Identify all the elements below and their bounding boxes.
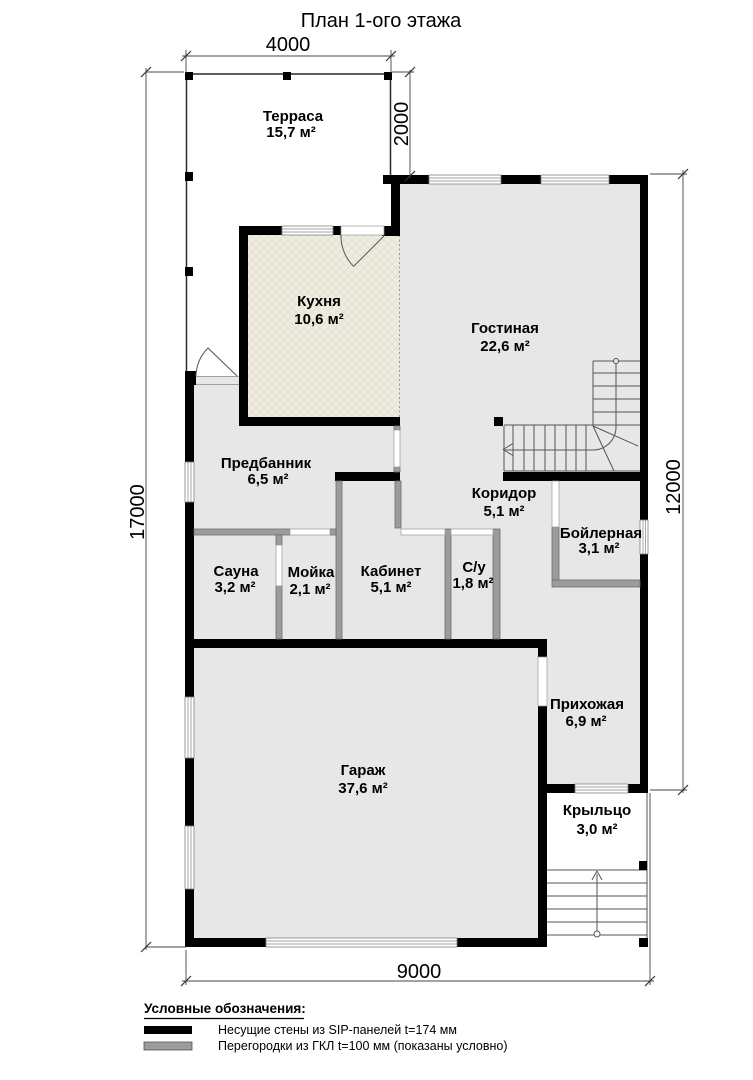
svg-text:3,1 м²: 3,1 м²	[578, 540, 619, 557]
svg-text:2000: 2000	[391, 102, 413, 147]
svg-text:План 1-ого этажа: План 1-ого этажа	[301, 10, 462, 32]
svg-text:3,0 м²: 3,0 м²	[576, 821, 617, 838]
svg-text:1,8 м²: 1,8 м²	[452, 575, 493, 592]
svg-text:17000: 17000	[127, 484, 149, 540]
svg-text:2,1 м²: 2,1 м²	[289, 581, 330, 598]
svg-text:Коридор: Коридор	[472, 485, 537, 502]
svg-text:Сауна: Сауна	[213, 563, 259, 580]
svg-text:Кабинет: Кабинет	[361, 563, 422, 580]
svg-text:Терраса: Терраса	[263, 108, 324, 125]
svg-text:Гостиная: Гостиная	[471, 320, 539, 337]
svg-text:5,1 м²: 5,1 м²	[483, 503, 524, 520]
svg-text:12000: 12000	[663, 459, 685, 515]
svg-text:Предбанник: Предбанник	[221, 455, 312, 472]
svg-text:22,6 м²: 22,6 м²	[480, 338, 529, 355]
svg-text:37,6 м²: 37,6 м²	[338, 780, 387, 797]
svg-text:10,6 м²: 10,6 м²	[294, 311, 343, 328]
svg-text:6,5 м²: 6,5 м²	[247, 471, 288, 488]
svg-text:5,1 м²: 5,1 м²	[370, 579, 411, 596]
svg-text:С/у: С/у	[462, 559, 486, 576]
svg-text:Прихожая: Прихожая	[550, 696, 624, 713]
svg-text:3,2 м²: 3,2 м²	[214, 579, 255, 596]
svg-text:Условные обозначения:: Условные обозначения:	[144, 1001, 306, 1016]
svg-text:6,9 м²: 6,9 м²	[565, 713, 606, 730]
svg-text:9000: 9000	[397, 961, 442, 983]
svg-text:Крыльцо: Крыльцо	[563, 802, 631, 819]
svg-text:Кухня: Кухня	[297, 293, 341, 310]
svg-text:Мойка: Мойка	[288, 564, 335, 581]
svg-text:Несущие стены из SIP-панелей t: Несущие стены из SIP-панелей t=174 мм	[218, 1023, 457, 1037]
svg-text:15,7 м²: 15,7 м²	[266, 124, 315, 141]
svg-text:Гараж: Гараж	[341, 762, 386, 779]
svg-text:Перегородки из ГКЛ t=100 мм (п: Перегородки из ГКЛ t=100 мм (показаны ус…	[218, 1039, 507, 1053]
svg-text:4000: 4000	[266, 34, 311, 56]
